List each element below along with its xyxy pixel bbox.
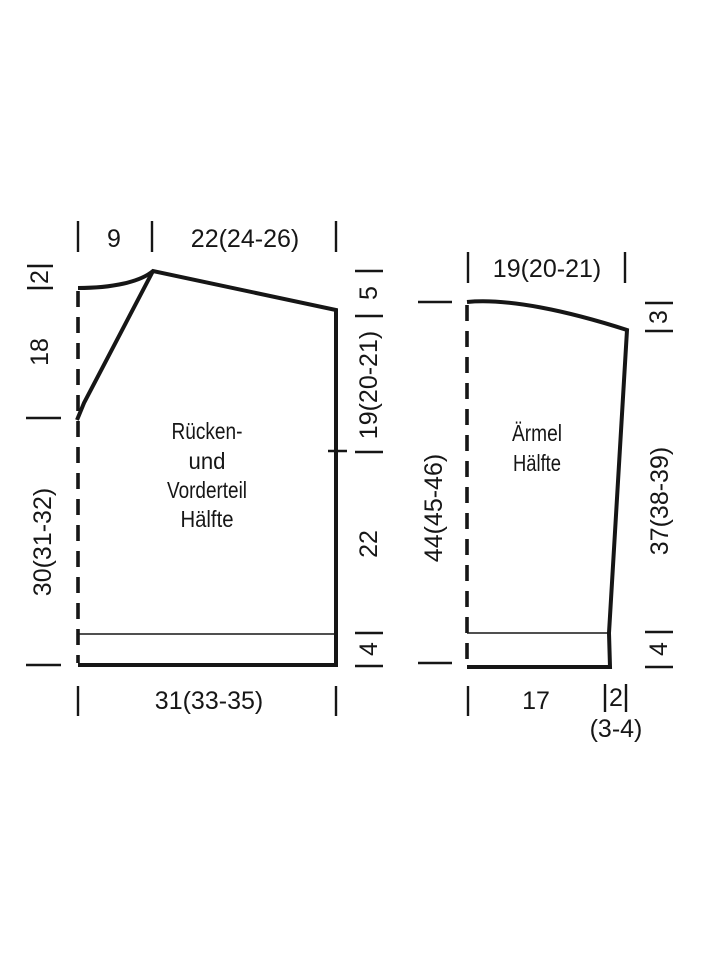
sleeve-piece-outline	[467, 301, 627, 667]
body-piece: 9 22(24-26) 31(33-35) 2 18 30(31-32) 5 1…	[26, 221, 383, 716]
measurement-side-lower-length: 30(31-32)	[29, 488, 57, 596]
measurement-sleeve-side-length: 37(38-39)	[646, 447, 674, 555]
measurement-front-neck-depth: 18	[26, 338, 54, 366]
body-piece-title: Rücken- und Vorderteil Hälfte	[167, 418, 247, 532]
measurement-sleeve-widening: 2	[609, 684, 623, 712]
pattern-schematic: 9 22(24-26) 31(33-35) 2 18 30(31-32) 5 1…	[0, 0, 720, 965]
measurement-body-bottom-width: 31(33-35)	[155, 687, 263, 715]
measurement-sleeve-widening-sizes: (3-4)	[590, 715, 643, 743]
measurement-body-rib-height: 4	[355, 642, 383, 656]
measurement-sleeve-cap-drop: 3	[645, 310, 673, 324]
measurement-shoulder-width: 22(24-26)	[191, 225, 299, 253]
measurement-sleeve-top-width: 19(20-21)	[493, 255, 601, 283]
body-piece-title-line: Hälfte	[181, 506, 234, 532]
body-piece-title-line: Rücken-	[172, 418, 243, 444]
pattern-schematic-canvas: 9 22(24-26) 31(33-35) 2 18 30(31-32) 5 1…	[0, 0, 720, 960]
measurement-shoulder-drop: 5	[355, 286, 383, 300]
measurement-armhole-depth: 19(20-21)	[355, 331, 383, 439]
body-piece-vneck-line	[77, 271, 153, 420]
sleeve-piece-title: Ärmel Hälfte	[512, 420, 562, 476]
sleeve-piece-title-line: Ärmel	[512, 420, 562, 446]
sleeve-piece-title-line: Hälfte	[513, 450, 561, 476]
measurement-sleeve-bottom-width: 17	[522, 687, 550, 715]
sleeve-piece: 19(20-21) 17 2 (3-4) 44(45-46) 3 37(38-3…	[418, 252, 674, 743]
measurement-neck-width: 9	[107, 225, 121, 253]
measurement-side-seam-length: 22	[355, 530, 383, 558]
body-piece-title-line: Vorderteil	[167, 477, 247, 503]
measurement-sleeve-rib-height: 4	[645, 642, 673, 656]
body-piece-title-line: und	[189, 448, 226, 474]
measurement-sleeve-center-length: 44(45-46)	[420, 454, 448, 562]
measurement-back-neck-depth: 2	[26, 270, 54, 284]
